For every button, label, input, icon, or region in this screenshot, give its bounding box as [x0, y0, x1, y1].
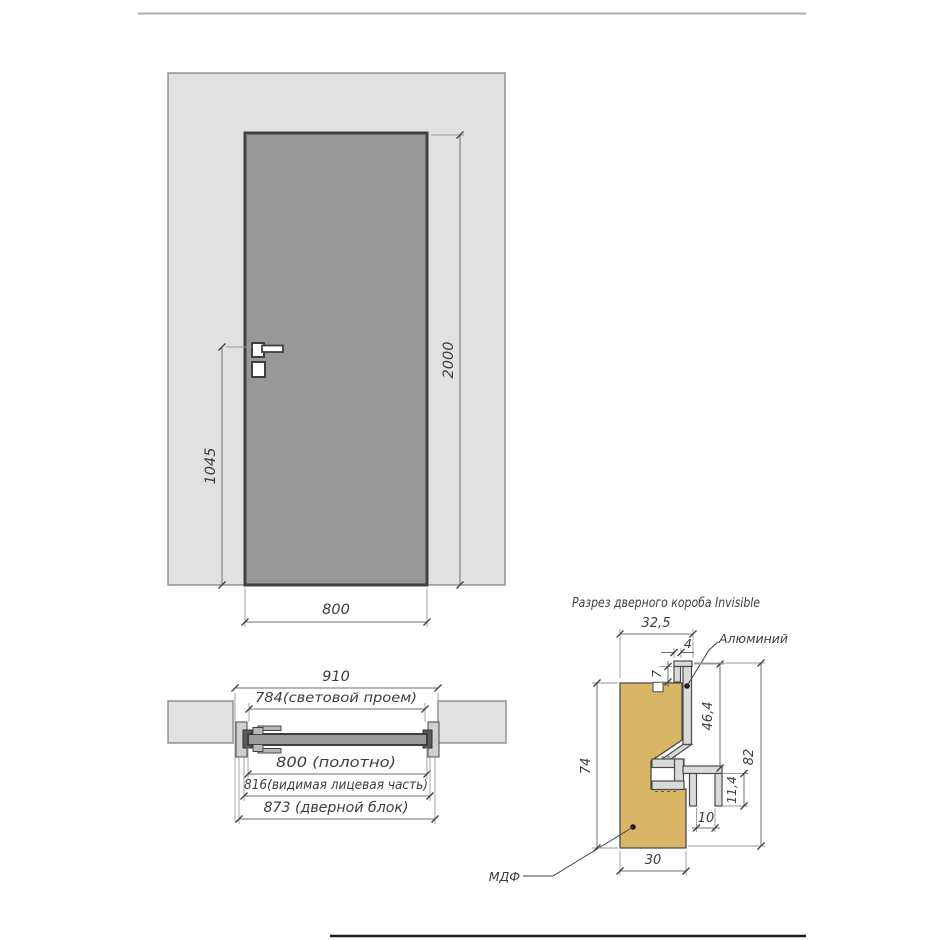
dim-label: 910 [322, 669, 350, 685]
profile-arm [683, 766, 722, 774]
door-technical-drawing: 800 2000 1045 [0, 0, 940, 940]
plan-view: 910 784(световой проем) 800 (полотно) [168, 669, 506, 824]
thumb-turn [252, 362, 265, 377]
dim-label: 4 [684, 636, 692, 651]
wall-right-plan [438, 701, 506, 743]
dim-label: 784(световой проем) [255, 691, 417, 706]
dim-label: 800 [322, 602, 350, 618]
dim-label: 2000 [441, 342, 457, 379]
material-label: Алюминий [718, 631, 788, 646]
dim-label: 816(видимая лицевая часть) [244, 778, 428, 793]
dim-label: 11,4 [724, 776, 739, 804]
profile-leg-inner [690, 774, 697, 807]
front-view: 800 2000 1045 [168, 73, 505, 627]
dim-label: 10 [698, 811, 715, 826]
dim-label: 7 [649, 670, 664, 678]
dim-mdf-width: 30 [617, 851, 690, 875]
mdf-groove-notch [653, 682, 663, 692]
dim-label: 873 (дверной блок) [264, 800, 409, 816]
dim-plan-clear-opening: 784(световой проем) [246, 691, 429, 722]
handle-lever [262, 346, 283, 353]
section-view: Разрез дверного короба Invisible [489, 596, 788, 884]
label-mdf-group: МДФ [489, 824, 636, 884]
profile-rib-bottom [652, 781, 684, 790]
door-leaf-front [245, 133, 427, 585]
label-aluminum-group: Алюминий [684, 631, 788, 689]
dim-label: 30 [645, 853, 662, 868]
door-leaf-plan [248, 734, 427, 745]
dim-label: 82 [742, 749, 757, 766]
dim-leg-height: 11,4 [723, 770, 748, 810]
dim-front-width: 800 [242, 588, 431, 627]
dim-label: 74 [579, 758, 594, 775]
profile-top-flange [674, 661, 692, 667]
material-label: МДФ [489, 869, 521, 884]
handle-rosette-bottom [253, 745, 263, 752]
drawing-page: 800 2000 1045 [0, 0, 940, 940]
handle-rosette-top [253, 728, 263, 735]
dim-label: 46,4 [701, 702, 716, 731]
dim-label: 800 (полотно) [276, 755, 396, 771]
dim-leg-gap: 10 [692, 808, 720, 832]
dim-label: 32,5 [642, 616, 671, 631]
dim-lip-width: 4 [661, 636, 694, 658]
leader-line [523, 827, 633, 876]
profile-web [683, 667, 692, 745]
wall-left-plan [168, 701, 233, 743]
dim-reveal: 46,4 [694, 661, 724, 772]
dim-mdf-height: 74 [579, 680, 618, 852]
dim-label: 1045 [203, 448, 219, 485]
profile-leg-outer [715, 774, 722, 807]
section-title: Разрез дверного короба Invisible [572, 596, 760, 611]
profile-tooth [674, 667, 681, 683]
